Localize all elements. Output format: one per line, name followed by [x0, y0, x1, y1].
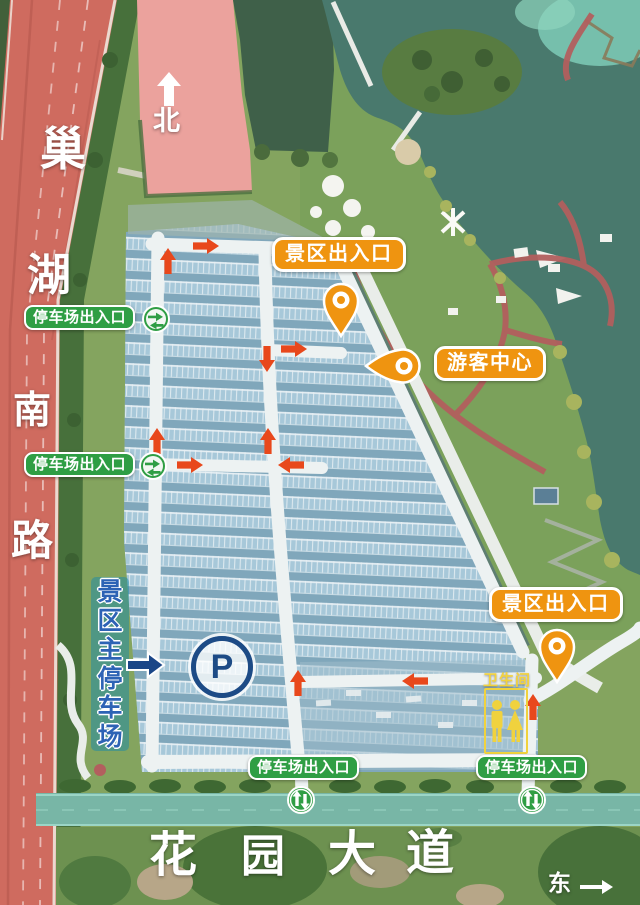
map-pin-left-icon: [364, 344, 424, 388]
map: 巢 湖 南 路 北 景区出入口 游客中心 停车场出入口 停车场出入口 景 区 主…: [0, 0, 640, 905]
restroom-label: 卫生间: [483, 669, 531, 690]
bottom-road-name-char: 道: [406, 830, 454, 878]
east-label: 东: [548, 872, 571, 895]
bottom-road-name-char: 园: [241, 835, 285, 879]
blue-arrow-icon: [126, 650, 166, 680]
parking-entrance-label-2: 停车场出入口: [24, 452, 135, 477]
left-road-name-char: 南: [13, 392, 51, 430]
parking-entrance-label-1: 停车场出入口: [24, 305, 135, 330]
two-way-arrow-vertical-icon: [287, 786, 315, 814]
left-road-name-char: 路: [11, 520, 53, 562]
two-way-arrow-icon: [142, 305, 170, 333]
left-road-name-char: 湖: [27, 254, 71, 298]
visitor-center-label: 游客中心: [434, 346, 546, 381]
restroom-figures-icon: [487, 698, 525, 752]
two-way-arrow-vertical-icon: [518, 786, 546, 814]
bottom-road-name-char: 大: [328, 831, 376, 879]
map-pin-icon: [535, 626, 579, 684]
map-pin-icon: [319, 280, 363, 338]
parking-symbol: P: [191, 636, 253, 698]
two-way-arrow-icon: [139, 452, 167, 480]
scenic-entrance-label-top: 景区出入口: [272, 237, 406, 272]
parking-entrance-label-3: 停车场出入口: [248, 755, 359, 780]
parking-entrance-label-4: 停车场出入口: [476, 755, 587, 780]
restroom-icon: [484, 688, 528, 754]
left-road-name-char: 巢: [40, 126, 86, 172]
scenic-entrance-label-right: 景区出入口: [489, 587, 623, 622]
east-arrow-icon: [580, 879, 614, 895]
north-label: 北: [153, 108, 180, 135]
north-arrow-icon: [157, 72, 181, 106]
main-parking-banner: 景 区 主 停 车 场: [91, 577, 129, 751]
bottom-road-name-char: 花: [149, 832, 197, 880]
